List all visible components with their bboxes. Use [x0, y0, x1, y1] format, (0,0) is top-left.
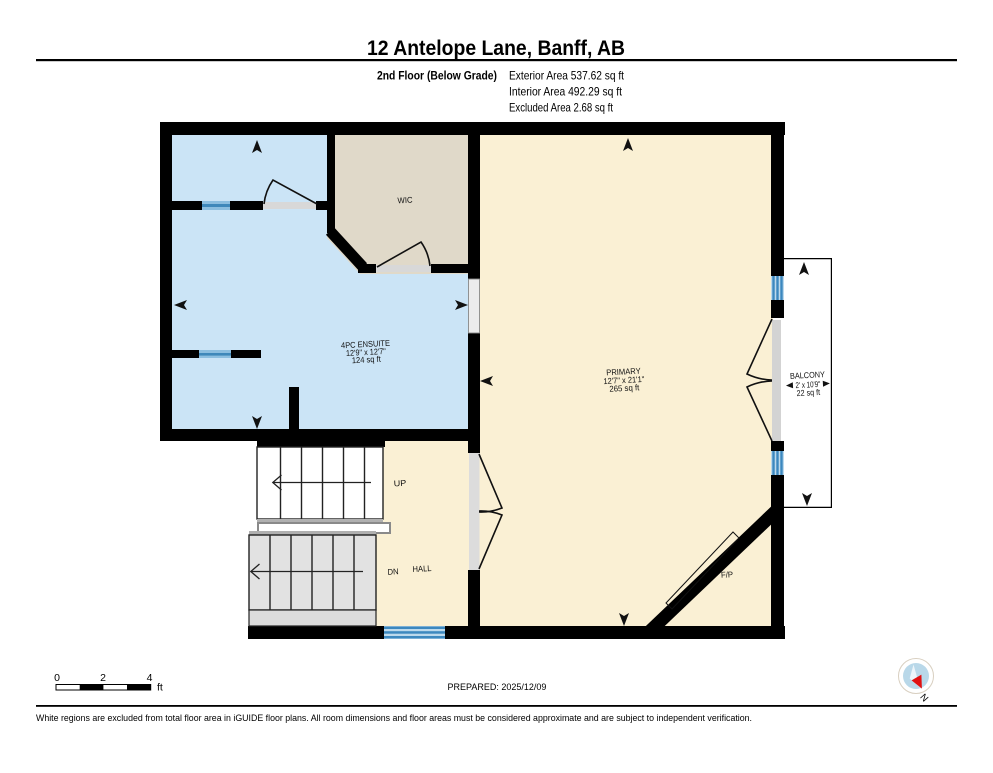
svg-text:0: 0	[54, 672, 60, 684]
svg-text:4: 4	[147, 672, 153, 684]
svg-text:Interior Area 492.29 sq ft: Interior Area 492.29 sq ft	[509, 85, 623, 99]
svg-text:UP: UP	[393, 478, 406, 489]
svg-text:HALL: HALL	[412, 563, 432, 574]
svg-text:22 sq ft: 22 sq ft	[796, 387, 821, 398]
svg-text:White regions are excluded fro: White regions are excluded from total fl…	[36, 713, 752, 723]
svg-text:WIC: WIC	[397, 195, 413, 206]
svg-text:12 Antelope Lane, Banff, AB: 12 Antelope Lane, Banff, AB	[367, 36, 625, 60]
svg-text:2nd Floor (Below Grade): 2nd Floor (Below Grade)	[377, 69, 497, 83]
svg-text:DN: DN	[387, 566, 399, 577]
svg-text:124 sq ft: 124 sq ft	[352, 354, 382, 366]
svg-text:Exterior Area 537.62 sq ft: Exterior Area 537.62 sq ft	[509, 69, 625, 83]
svg-text:PREPARED: 2025/12/09: PREPARED: 2025/12/09	[448, 682, 547, 692]
svg-text:2: 2	[100, 672, 106, 684]
svg-text:265 sq ft: 265 sq ft	[609, 382, 640, 394]
svg-text:ft: ft	[157, 682, 163, 694]
svg-text:F/P: F/P	[721, 569, 734, 580]
svg-text:Excluded Area 2.68 sq ft: Excluded Area 2.68 sq ft	[509, 101, 614, 115]
svg-text:N: N	[917, 692, 930, 705]
